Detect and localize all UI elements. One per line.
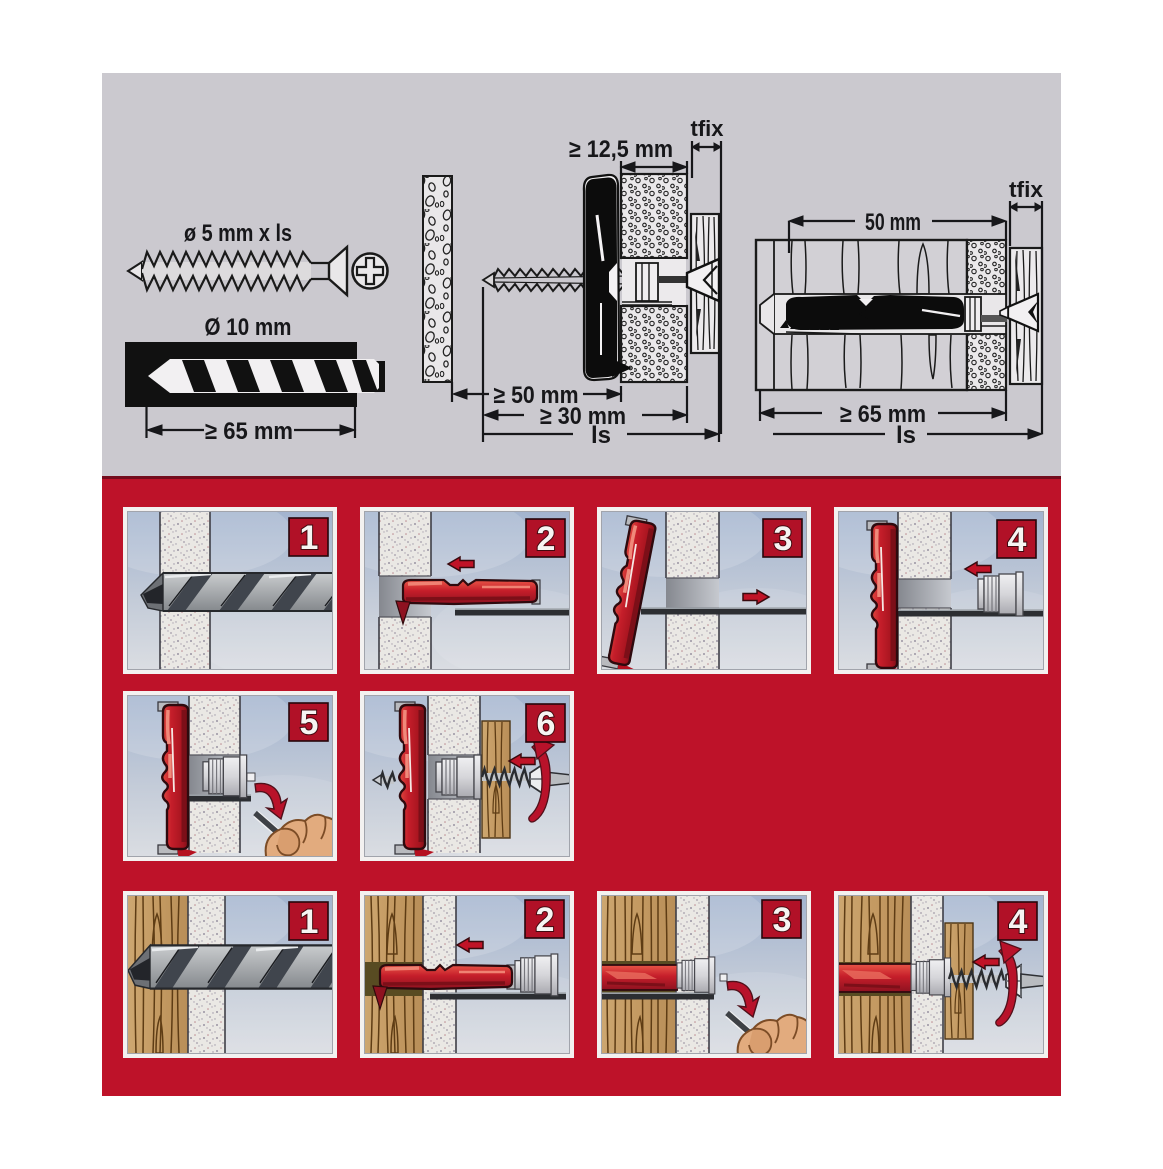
svg-text:2: 2 (537, 520, 556, 558)
svg-text:tfix: tfix (1009, 177, 1044, 202)
svg-text:6: 6 (537, 705, 556, 743)
svg-text:ls: ls (896, 422, 916, 449)
svg-text:3: 3 (773, 901, 792, 939)
svg-text:4: 4 (1008, 521, 1027, 559)
svg-text:1: 1 (300, 519, 319, 557)
svg-text:3: 3 (774, 520, 793, 558)
svg-text:≥ 65 mm: ≥ 65 mm (205, 418, 293, 445)
svg-text:50 mm: 50 mm (865, 209, 921, 236)
svg-text:Ø 10 mm: Ø 10 mm (205, 314, 292, 341)
svg-text:1: 1 (300, 903, 319, 941)
svg-text:5: 5 (300, 704, 319, 742)
svg-text:2: 2 (536, 901, 555, 939)
svg-text:4: 4 (1009, 903, 1028, 941)
svg-text:≥ 12,5 mm: ≥ 12,5 mm (569, 136, 673, 163)
svg-text:ø 5 mm x ls: ø 5 mm x ls (184, 220, 292, 247)
svg-text:ls: ls (591, 422, 611, 449)
svg-text:tfix: tfix (691, 116, 725, 141)
svg-text:≥ 30 mm: ≥ 30 mm (540, 403, 626, 430)
